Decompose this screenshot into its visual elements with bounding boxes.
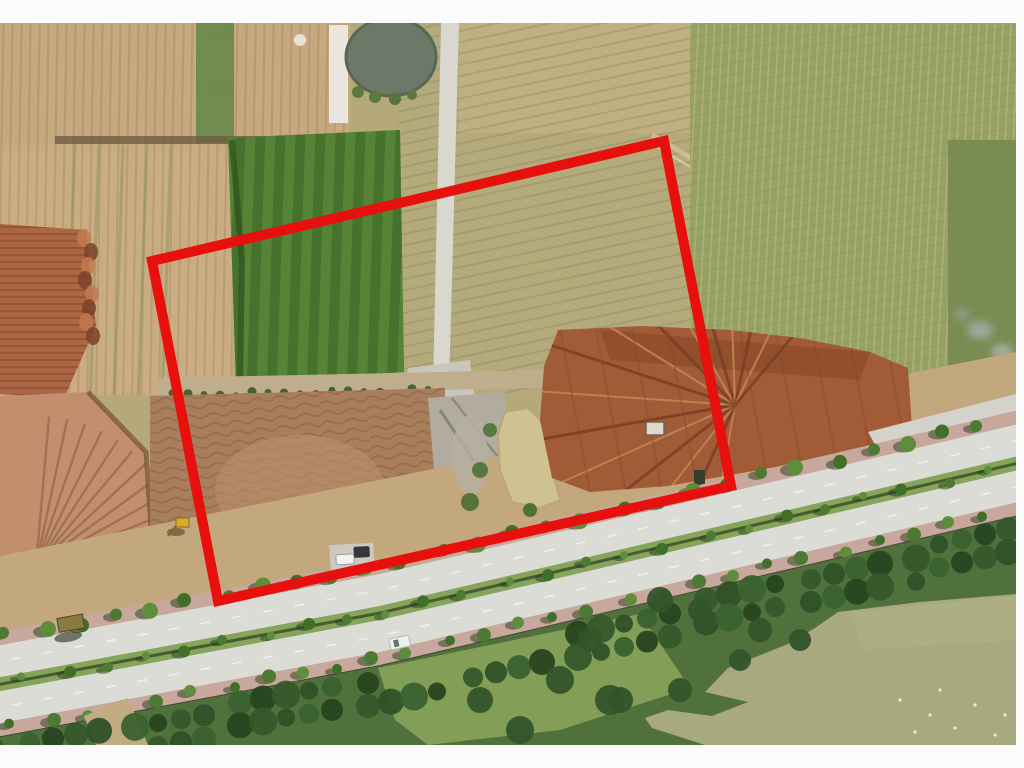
- tree-cluster: [506, 716, 534, 744]
- tree-cluster: [485, 661, 507, 683]
- road-tree: [64, 666, 76, 678]
- road-tree: [656, 543, 668, 555]
- road-tree: [364, 651, 378, 665]
- road-tree: [262, 669, 276, 683]
- tree-cluster: [800, 591, 822, 613]
- margin-right: [1016, 0, 1024, 768]
- road-tree: [794, 551, 808, 565]
- road-tree: [477, 628, 491, 642]
- road-tree: [745, 525, 753, 533]
- dark-car: [353, 546, 370, 558]
- tree-cluster: [467, 687, 493, 713]
- road-tree: [692, 574, 706, 588]
- tree-cluster: [636, 631, 658, 653]
- road-tree: [4, 719, 14, 729]
- tree-cluster: [356, 694, 380, 718]
- tree-cluster: [64, 723, 88, 747]
- tree-cluster: [299, 704, 319, 724]
- road-tree: [149, 695, 163, 709]
- tree-cluster: [171, 709, 191, 729]
- tree-cluster: [822, 585, 846, 609]
- smoke-puff: [954, 308, 970, 320]
- road-tree: [875, 535, 885, 545]
- tree-cluster: [463, 667, 483, 687]
- tree-cluster: [973, 545, 997, 569]
- tree-cluster: [300, 682, 318, 700]
- tree-cluster: [228, 690, 252, 714]
- tree-cluster: [272, 681, 300, 709]
- road-tree: [984, 466, 992, 474]
- tree-cluster: [845, 557, 869, 581]
- road-tree: [417, 595, 429, 607]
- tree-cluster: [748, 618, 772, 642]
- road-tree: [945, 478, 955, 488]
- road-tree: [977, 512, 987, 522]
- tree-cluster: [951, 551, 973, 573]
- pond-vegetation: [352, 86, 364, 98]
- aerial-photo: [0, 18, 1024, 768]
- road-tree: [399, 647, 411, 659]
- road-tree: [820, 504, 830, 514]
- tree-cluster: [866, 573, 894, 601]
- white-gravel-strip: [329, 25, 348, 123]
- road-tree: [620, 551, 628, 559]
- sparkle: [938, 688, 941, 691]
- tree-cluster: [738, 575, 766, 603]
- tree-cluster: [86, 718, 112, 744]
- tree-cluster: [227, 712, 253, 738]
- tree-cluster: [823, 563, 845, 585]
- road-tree: [142, 652, 150, 660]
- tree-cluster: [688, 598, 712, 622]
- tree-cluster: [974, 523, 996, 545]
- tree-cluster: [607, 687, 633, 713]
- road-tree: [859, 492, 867, 500]
- digger: [176, 518, 189, 527]
- sparkle: [913, 730, 916, 733]
- road-tree: [755, 467, 767, 479]
- road-tree: [706, 530, 716, 540]
- road-tree: [506, 577, 514, 585]
- tree-cluster: [715, 603, 743, 631]
- tree-cluster: [400, 683, 428, 711]
- tree-cluster: [765, 597, 785, 617]
- pond-water: [346, 18, 436, 96]
- road-tree: [868, 443, 880, 455]
- road-tree: [381, 611, 389, 619]
- tree-cluster: [357, 672, 379, 694]
- road-tree: [942, 516, 954, 528]
- road-tree: [217, 635, 227, 645]
- sparkle: [973, 703, 976, 706]
- tree-cluster: [193, 704, 215, 726]
- tree-cluster: [378, 689, 404, 715]
- road-tree: [781, 510, 793, 522]
- tree-cluster: [546, 666, 574, 694]
- bush: [461, 493, 479, 511]
- margin-top: [0, 0, 1024, 23]
- road-tree: [332, 664, 342, 674]
- tree-cluster: [149, 714, 167, 732]
- smoke-puff: [967, 321, 993, 339]
- tree-cluster: [902, 545, 930, 573]
- sparkle: [898, 698, 901, 701]
- road-tree: [178, 645, 190, 657]
- road-tree: [110, 609, 122, 621]
- road-tree: [762, 558, 772, 568]
- road-tree: [727, 570, 739, 582]
- road-tree: [512, 617, 524, 629]
- crop-rows: [228, 130, 404, 384]
- road-tree: [787, 459, 803, 475]
- tree-cluster: [668, 678, 692, 702]
- crop-block: [228, 130, 404, 384]
- tree-cluster: [277, 709, 295, 727]
- road-tree: [542, 569, 554, 581]
- road-tree: [177, 593, 191, 607]
- road-tree: [625, 593, 637, 605]
- road-tree: [547, 612, 557, 622]
- tree-cluster: [121, 713, 149, 741]
- tree-cluster: [729, 649, 751, 671]
- road-tree: [581, 557, 591, 567]
- sparkle: [1003, 713, 1006, 716]
- road-tree: [456, 590, 466, 600]
- tree-cluster: [249, 708, 277, 736]
- road-tree: [184, 685, 196, 697]
- aerial-photo-canvas: [0, 0, 1024, 768]
- road-tree: [297, 667, 309, 679]
- road-tree: [267, 631, 275, 639]
- pond-vegetation: [389, 93, 401, 105]
- tree-cluster: [952, 529, 972, 549]
- tree-cluster: [321, 699, 343, 721]
- white-car: [336, 554, 354, 565]
- tree-cluster: [844, 579, 870, 605]
- road-tree: [342, 614, 352, 624]
- tree-cluster: [801, 569, 821, 589]
- sparkle: [953, 726, 956, 729]
- tree-cluster: [789, 629, 811, 651]
- debris-patch: [294, 34, 306, 46]
- tree-cluster: [647, 587, 673, 613]
- tree-cluster: [930, 535, 948, 553]
- tree-cluster: [907, 573, 925, 591]
- road-tree: [833, 455, 847, 469]
- margin-bottom: [0, 745, 1024, 768]
- sparkle: [928, 713, 931, 716]
- tree-cluster: [428, 682, 446, 700]
- bush: [523, 503, 537, 517]
- road-tree: [47, 713, 61, 727]
- grey-spoil: [452, 415, 488, 495]
- tree-cluster: [929, 557, 949, 577]
- tree-cluster: [766, 575, 784, 593]
- tree-cluster: [637, 609, 657, 629]
- road-tree: [103, 662, 113, 672]
- road-tree: [900, 436, 916, 452]
- hedgerow: [196, 23, 234, 143]
- pond-vegetation: [407, 90, 417, 100]
- bush: [483, 423, 497, 437]
- tree-cluster: [322, 677, 342, 697]
- road-tree: [40, 621, 56, 637]
- earth-mound: [86, 327, 100, 345]
- tree-cluster: [614, 637, 634, 657]
- tree-cluster: [615, 615, 633, 633]
- road-tree: [445, 636, 455, 646]
- sparkle: [993, 733, 996, 736]
- bush: [472, 462, 488, 478]
- tree-cluster: [507, 655, 531, 679]
- screenshot-root: [0, 0, 1024, 768]
- tree-cluster: [578, 628, 602, 652]
- road-tree: [303, 618, 315, 630]
- tree-cluster: [658, 624, 682, 648]
- road-tree: [142, 603, 158, 619]
- road-tree: [970, 420, 982, 432]
- pond-vegetation: [369, 91, 381, 103]
- shed: [646, 422, 664, 435]
- road-tree: [17, 672, 25, 680]
- road-tree: [935, 425, 949, 439]
- road-tree: [895, 483, 907, 495]
